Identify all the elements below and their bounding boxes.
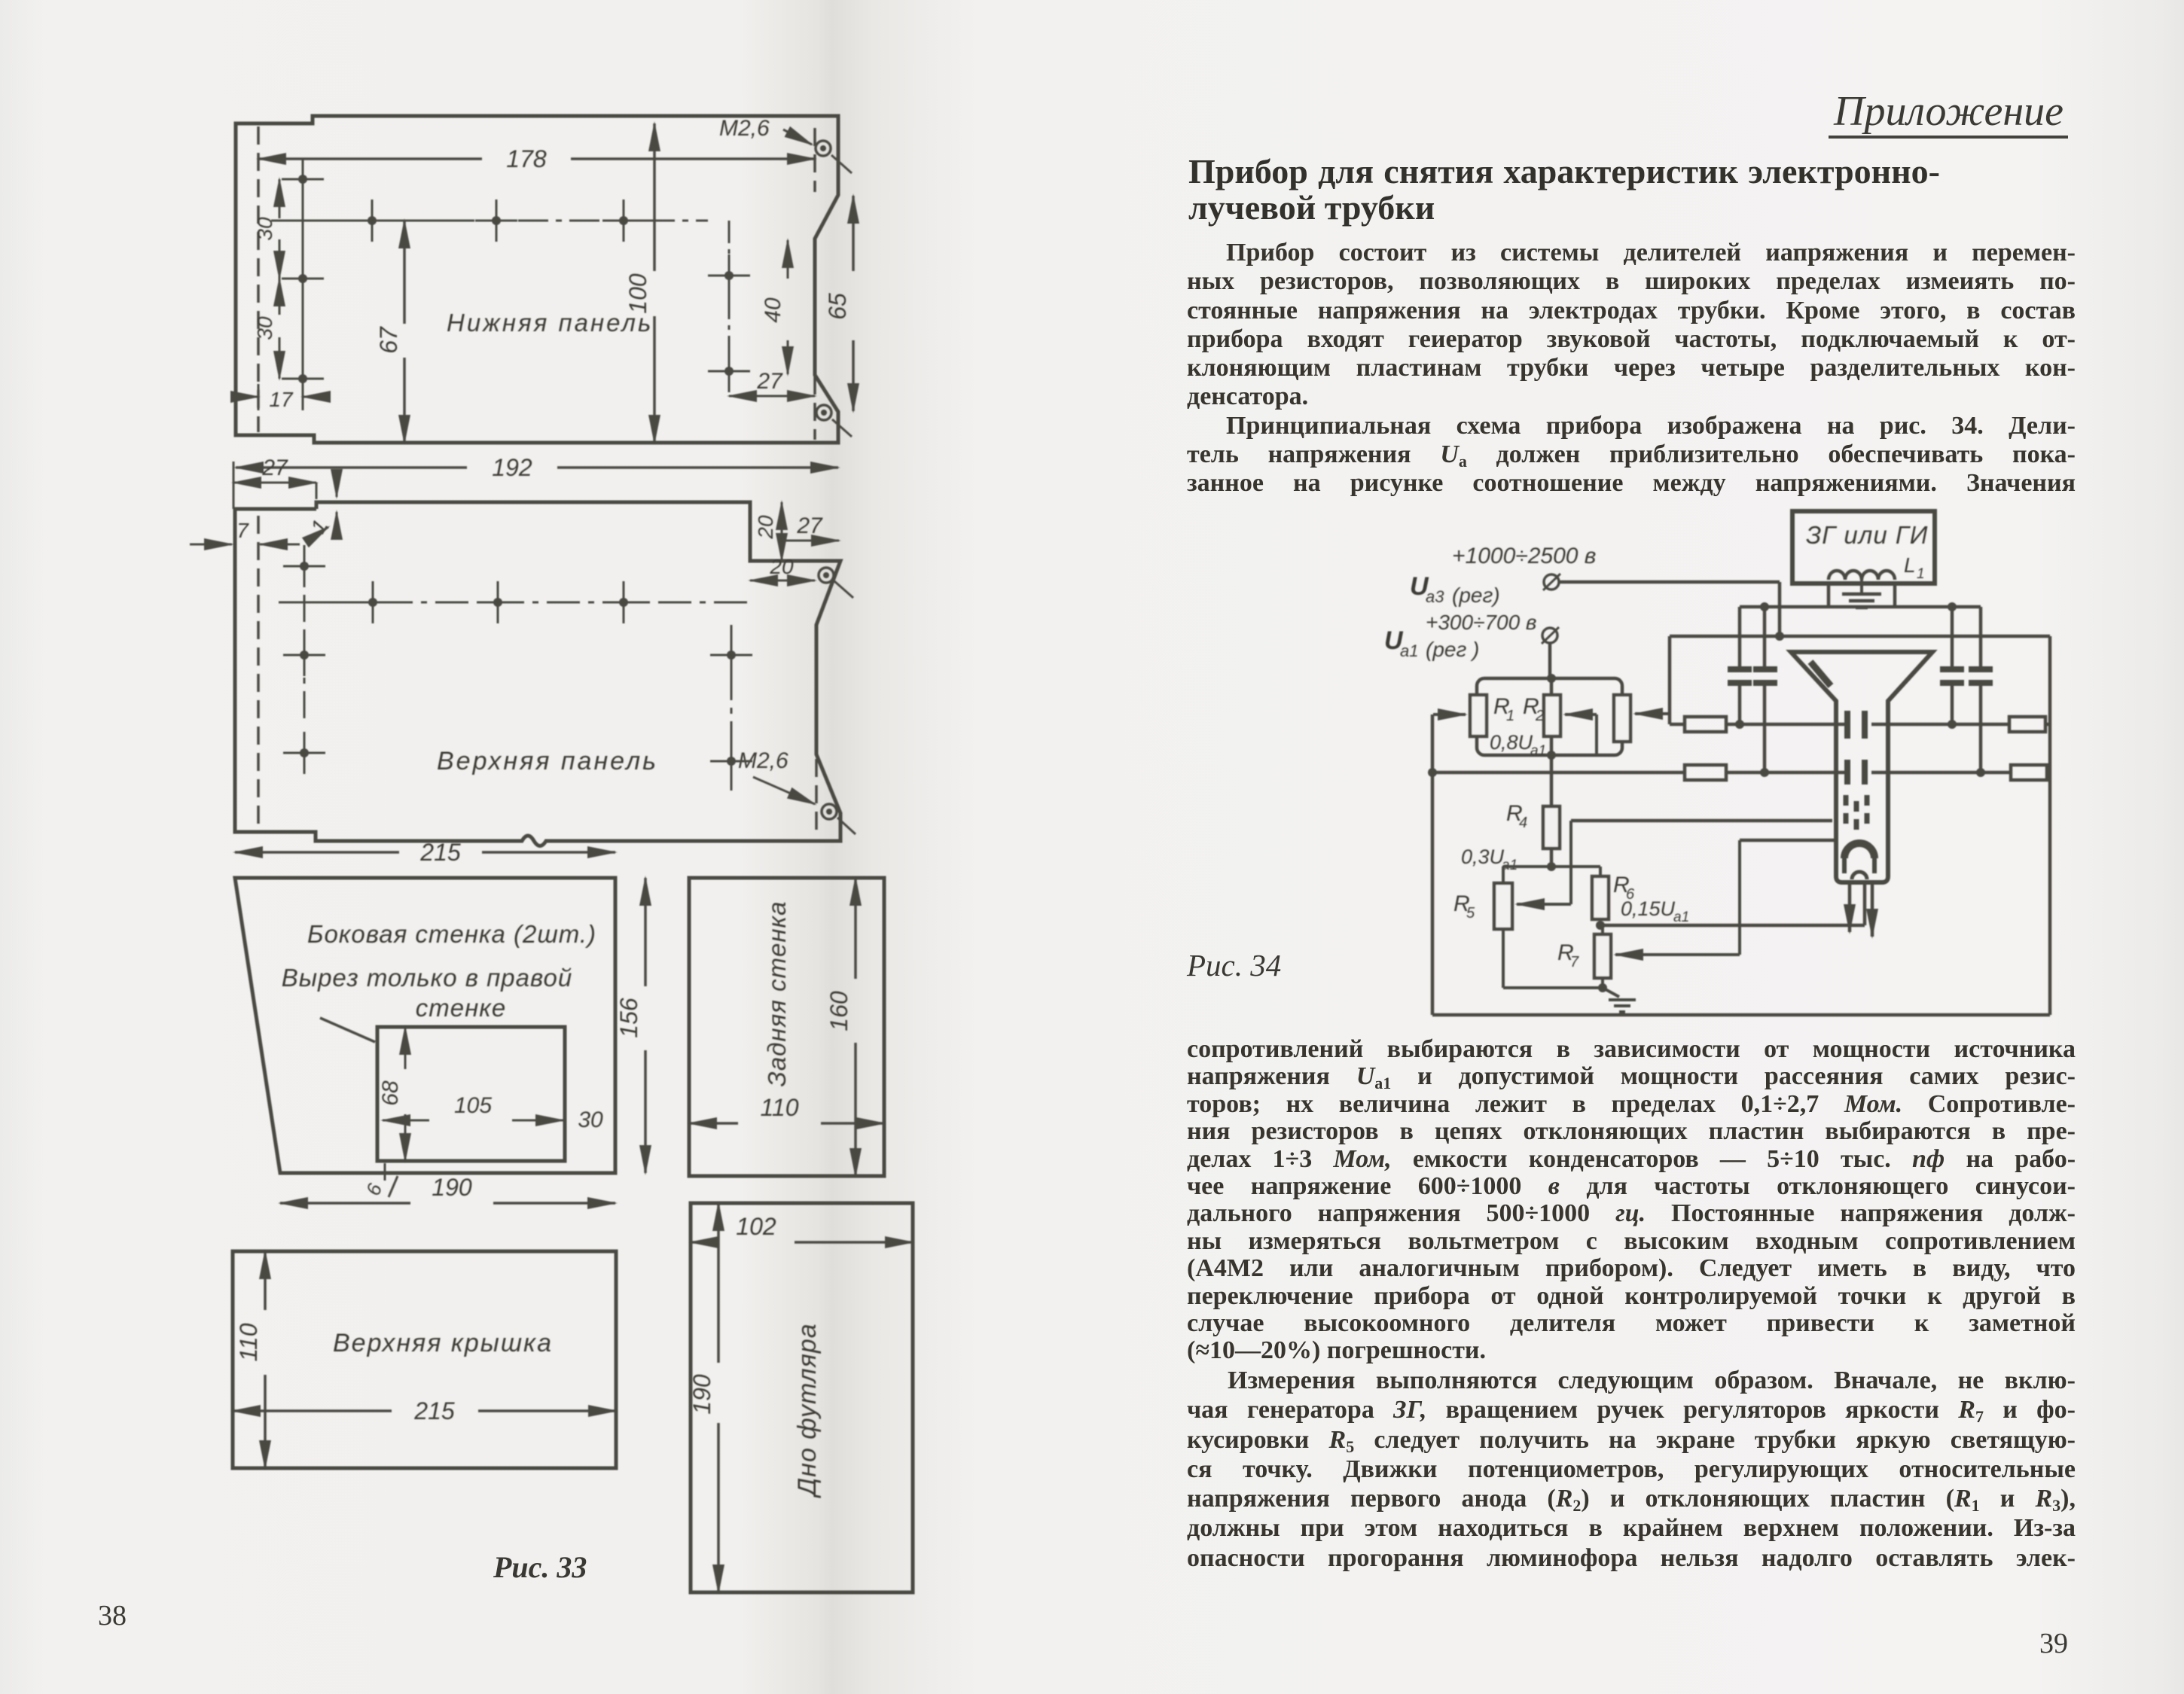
svg-text:160: 160 xyxy=(825,991,853,1031)
svg-text:Боковая стенка (2шт.): Боковая стенка (2шт.) xyxy=(307,920,596,948)
svg-text:110: 110 xyxy=(760,1094,798,1121)
svg-text:(рег ): (рег ) xyxy=(1426,638,1479,661)
svg-text:190: 190 xyxy=(432,1174,472,1201)
svg-text:+300÷700 в: +300÷700 в xyxy=(1426,611,1537,634)
svg-text:65: 65 xyxy=(824,293,851,320)
svg-text:27: 27 xyxy=(756,369,783,394)
svg-text:Задняя стенка: Задняя стенка xyxy=(763,901,791,1087)
svg-text:100: 100 xyxy=(624,273,651,314)
svg-text:М2,6: М2,6 xyxy=(719,116,770,141)
svg-text:190: 190 xyxy=(688,1374,715,1415)
svg-text:110: 110 xyxy=(235,1323,262,1361)
svg-text:192: 192 xyxy=(492,454,532,481)
svg-text:27: 27 xyxy=(261,455,288,480)
svg-text:Верхняя крышка: Верхняя крышка xyxy=(333,1329,553,1357)
svg-text:178: 178 xyxy=(506,145,547,172)
svg-text:1: 1 xyxy=(1506,708,1514,724)
svg-text:30: 30 xyxy=(578,1107,603,1132)
svg-text:215: 215 xyxy=(413,1397,455,1424)
svg-text:105: 105 xyxy=(454,1093,492,1118)
svg-text:5: 5 xyxy=(1466,905,1475,922)
svg-text:17: 17 xyxy=(269,388,294,411)
svg-text:a3: a3 xyxy=(1426,587,1444,606)
svg-text:40: 40 xyxy=(761,297,785,323)
svg-text:0,15U: 0,15U xyxy=(1621,897,1676,920)
svg-text:7: 7 xyxy=(236,519,249,542)
svg-text:a1: a1 xyxy=(1673,909,1689,925)
svg-text:7: 7 xyxy=(1570,954,1579,970)
svg-text:a1: a1 xyxy=(1400,641,1418,660)
svg-text:30: 30 xyxy=(253,316,276,340)
svg-text:Нижняя панель: Нижняя панель xyxy=(447,309,653,337)
svg-text:0,8U: 0,8U xyxy=(1490,731,1533,754)
svg-text:67: 67 xyxy=(375,326,402,354)
svg-text:Вырез только в правой: Вырез только в правой xyxy=(282,964,572,992)
svg-text:102: 102 xyxy=(736,1213,776,1240)
svg-text:4: 4 xyxy=(1519,815,1527,831)
svg-text:ЗГ или ГИ: ЗГ или ГИ xyxy=(1806,521,1928,549)
svg-text:Верхняя панель: Верхняя панель xyxy=(437,747,658,775)
svg-text:215: 215 xyxy=(419,839,461,866)
svg-text:27: 27 xyxy=(796,513,823,538)
svg-text:1: 1 xyxy=(1917,566,1925,582)
svg-text:20: 20 xyxy=(754,515,777,540)
svg-text:0,3U: 0,3U xyxy=(1461,845,1505,868)
svg-text:(рег): (рег) xyxy=(1452,583,1500,607)
svg-text:6: 6 xyxy=(361,1180,386,1198)
svg-text:Дно футляра: Дно футляра xyxy=(793,1323,822,1498)
svg-text:+1000÷2500 в: +1000÷2500 в xyxy=(1452,544,1596,568)
svg-text:68: 68 xyxy=(378,1080,403,1106)
svg-text:20: 20 xyxy=(769,555,794,578)
svg-text:156: 156 xyxy=(615,998,642,1038)
svg-text:2: 2 xyxy=(1535,708,1544,724)
svg-text:стенке: стенке xyxy=(416,994,506,1022)
svg-text:L: L xyxy=(1904,553,1916,577)
svg-text:a1: a1 xyxy=(1530,743,1546,759)
